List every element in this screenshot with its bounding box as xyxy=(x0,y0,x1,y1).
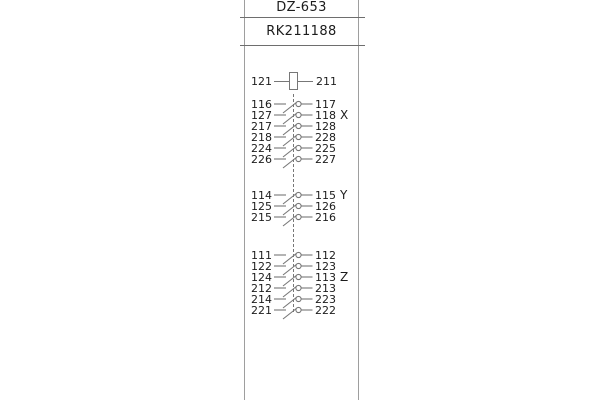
contact-row: 215 216 xyxy=(246,205,345,229)
divider-under-code xyxy=(240,45,365,46)
group-label-y: Y xyxy=(340,188,347,202)
order-code-label: RK211188 xyxy=(245,18,358,45)
coil-left-terminal-label: 121 xyxy=(244,75,272,88)
model-label: DZ-653 xyxy=(245,0,358,17)
right-terminal-label: 216 xyxy=(315,211,345,224)
left-terminal-label: 215 xyxy=(246,211,272,224)
coil-right-terminal-label: 211 xyxy=(316,75,346,88)
contact-switch-icon xyxy=(272,298,314,322)
coil-left-lead xyxy=(274,81,289,82)
group-label-z: Z xyxy=(340,270,348,284)
right-border-rail xyxy=(358,0,359,400)
left-terminal-label: 221 xyxy=(246,304,272,317)
contact-switch-icon xyxy=(272,147,314,171)
contact-row: 226 227 xyxy=(246,147,345,171)
right-terminal-label: 222 xyxy=(315,304,345,317)
contact-switch-icon xyxy=(272,205,314,229)
right-terminal-label: 227 xyxy=(315,153,345,166)
left-border-rail xyxy=(244,0,245,400)
coil-right-lead xyxy=(298,81,313,82)
coil-icon xyxy=(289,72,298,90)
contact-row: 221 222 xyxy=(246,298,345,322)
group-label-x: X xyxy=(340,108,348,122)
left-terminal-label: 226 xyxy=(246,153,272,166)
relay-schematic-panel: DZ-653 RK211188 121 211 116 117 127 118 … xyxy=(0,0,600,400)
